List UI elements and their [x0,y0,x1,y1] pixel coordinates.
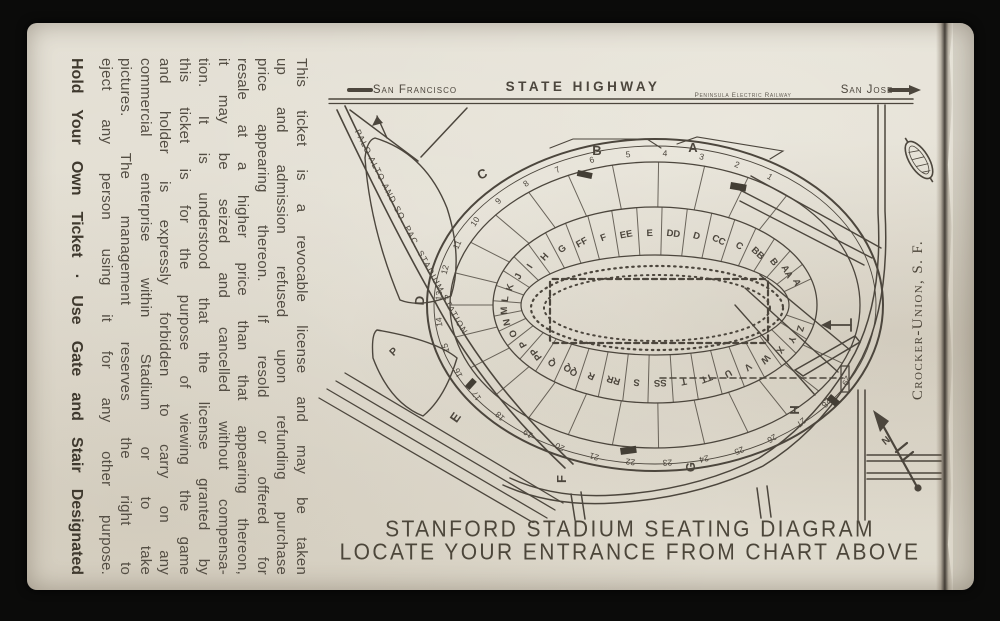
license-terms-block: This ticket is a revocable license and m… [62,58,310,575]
divider-line [568,394,586,435]
divider-line [729,347,744,387]
gate-number-19: 19 [521,427,535,441]
divider-line [471,348,510,368]
highway-left-label: San Francisco [373,84,457,96]
gate-number-14: 14 [433,317,444,328]
section-label-EE: EE [619,228,634,241]
divider-line [691,353,698,399]
section-label-C: C [733,240,745,253]
section-label-K: K [504,283,517,293]
diagram-caption: STANFORD STADIUM SEATING DIAGRAM LOCATE … [330,518,930,564]
divider-line [471,242,510,262]
section-label-R: R [586,369,597,382]
caption-subtitle: LOCATE YOUR ENTRANCE FROM CHART ABOVE [330,540,930,565]
highway-right-label: San Jose [841,84,894,96]
section-label-M: M [499,306,510,314]
divider-line [759,380,787,414]
gate-number-24: 24 [698,453,710,465]
entrance-gate-E: E [447,409,464,425]
section-label-G: G [556,243,569,256]
san-jose-arrow-icon [909,85,921,95]
divider-line [612,211,619,257]
gate-number-labels: 1234567891011121314151617181920212223242… [433,148,853,468]
divider-line [658,403,659,448]
divider-line [803,345,842,363]
terms-line-3: price appearing thereon. If resold or of… [252,58,272,575]
section-label-RR: RR [605,372,621,386]
divider-line [612,401,621,445]
section-label-W: W [758,352,772,366]
section-label-Q: Q [546,356,559,369]
terms-line-4: resale at a higher price than that appea… [232,58,252,575]
gate-number-10: 10 [468,215,482,229]
section-label-S: S [633,376,641,388]
gate-number-3: 3 [698,151,705,162]
section-label-V: V [741,360,753,373]
divider-line [496,367,529,395]
section-label-F: F [599,232,608,244]
section-label-BB: BB [749,245,767,262]
terms-line-9: commercial enterprise within Stadium or … [135,58,155,575]
gate-number-12: 12 [439,263,451,275]
hold-your-ticket-line: Hold Your Own Ticket · Use Gate and Stai… [68,58,86,575]
divider-line [682,209,688,256]
ramp-marker-box [577,170,593,179]
section-label-T: T [680,375,688,387]
compass-n-label: N [880,435,893,448]
terms-line-6: tion. It is understood that the license … [193,58,213,575]
gate-number-20: 20 [553,441,566,454]
ramp-structures [550,137,881,395]
printer-union-bug [897,128,941,192]
terms-line-1: This ticket is a revocable license and m… [291,58,311,575]
parking-label: P [387,345,400,358]
ramp-marker-box [620,446,637,455]
divider-line [455,273,497,283]
section-label-E: E [646,228,653,239]
divider-line [529,382,555,417]
divider-line [711,350,723,394]
gate-number-13: 13 [433,290,444,300]
stadium-rings [427,139,883,471]
entrance-gate-A: A [688,140,698,155]
gate-number-11: 11 [451,238,464,250]
gate-number-22: 22 [625,456,636,467]
section-label-QQ: QQ [562,361,580,378]
gate-number-5: 5 [625,149,631,160]
gate-number-21: 21 [588,451,600,463]
entrance-gate-F: F [554,475,569,483]
terms-line-11: eject any person using it for any other … [96,58,116,575]
entrance-gate-G: G [683,462,698,472]
caption-title: STANFORD STADIUM SEATING DIAGRAM [330,517,930,542]
railway-label: Peninsula Electric Railway [695,92,792,99]
divider-line [661,207,662,255]
terms-line-7: this ticket is for the purpose of viewin… [174,58,194,575]
section-label-L: L [500,295,512,302]
terms-line-5: it may be seized and cancelled without c… [213,58,233,575]
divider-line [729,392,749,432]
section-label-TT: TT [699,371,714,385]
left-arrow-icon [821,320,831,330]
section-label-FF: FF [574,235,590,250]
gate-number-4: 4 [662,148,667,158]
gate-number-1: 1 [765,171,775,182]
section-label-J: J [512,272,524,281]
divider-line [529,192,555,227]
section-label-DD: DD [666,228,681,241]
divider-line [623,354,629,401]
gate-number-23: 23 [662,457,672,468]
printer-credit-block: Crocker-Union, S. F. [905,195,935,445]
gate-number-7: 7 [553,164,562,175]
divider-line [568,175,586,216]
gate-number-26: 26 [765,432,779,446]
divider-line [648,355,649,403]
entrance-gate-C: C [475,165,490,183]
divider-line [694,400,704,444]
divider-line [702,213,712,258]
printer-credit: Crocker-Union, S. F. [905,195,931,445]
ramp-marker-box [730,182,747,192]
section-label-CC: CC [710,233,727,249]
scanned-ticket-photo: This ticket is a revocable license and m… [0,0,1000,621]
section-label-B: B [767,256,780,268]
terms-line-2: up and admission refused upon refunding … [271,58,291,575]
section-label-D: D [692,230,702,243]
gate-number-9: 9 [493,196,504,207]
license-terms-text: This ticket is a revocable license and m… [62,58,310,575]
divider-line [694,166,704,210]
stadium-seating-diagram: San Francisco STATE HIGHWAY Peninsula El… [315,58,945,523]
section-label-P: P [517,338,530,349]
north-arrow-icon [873,410,889,432]
highway-center-label: STATE HIGHWAY [506,79,661,94]
section-label-AA: AA [778,263,794,280]
divider-line [658,162,659,207]
gate-number-8: 8 [521,178,531,189]
entrance-gate-H: H [787,405,802,414]
entrance-gate-B: B [592,143,601,158]
gate-number-25: 25 [733,444,746,457]
entrance-gate-D: D [412,295,428,306]
divider-line [588,216,600,260]
divider-line [612,165,621,209]
terms-line-8: and holder is expressly forbidden to car… [154,58,174,575]
divider-line [637,208,640,256]
ticket-stub-edge [953,23,974,590]
section-label-N: N [501,318,513,327]
gate-number-2: 2 [733,159,741,170]
section-label-SS: SS [654,377,667,388]
gate-number-17: 17 [469,389,483,403]
divider-line [496,215,529,243]
divider-line [598,352,608,397]
terms-line-10: pictures. The management reserves the ri… [115,58,135,575]
